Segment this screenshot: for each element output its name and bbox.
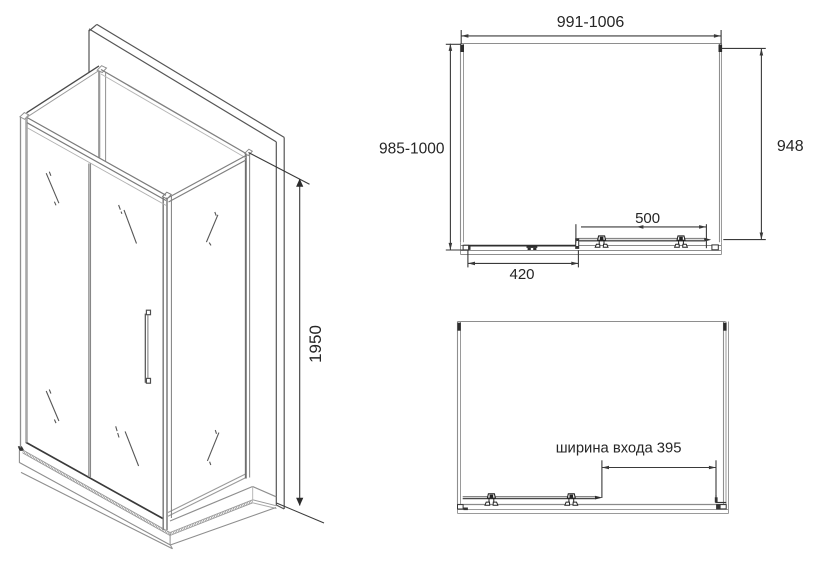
svg-text:1950: 1950 [306, 325, 325, 363]
svg-text:ширина входа 395: ширина входа 395 [556, 441, 682, 457]
svg-text:500: 500 [635, 210, 660, 227]
svg-text:985-1000: 985-1000 [379, 141, 445, 158]
svg-text:948: 948 [777, 138, 804, 155]
svg-text:420: 420 [509, 266, 534, 283]
svg-text:991-1006: 991-1006 [557, 14, 625, 31]
